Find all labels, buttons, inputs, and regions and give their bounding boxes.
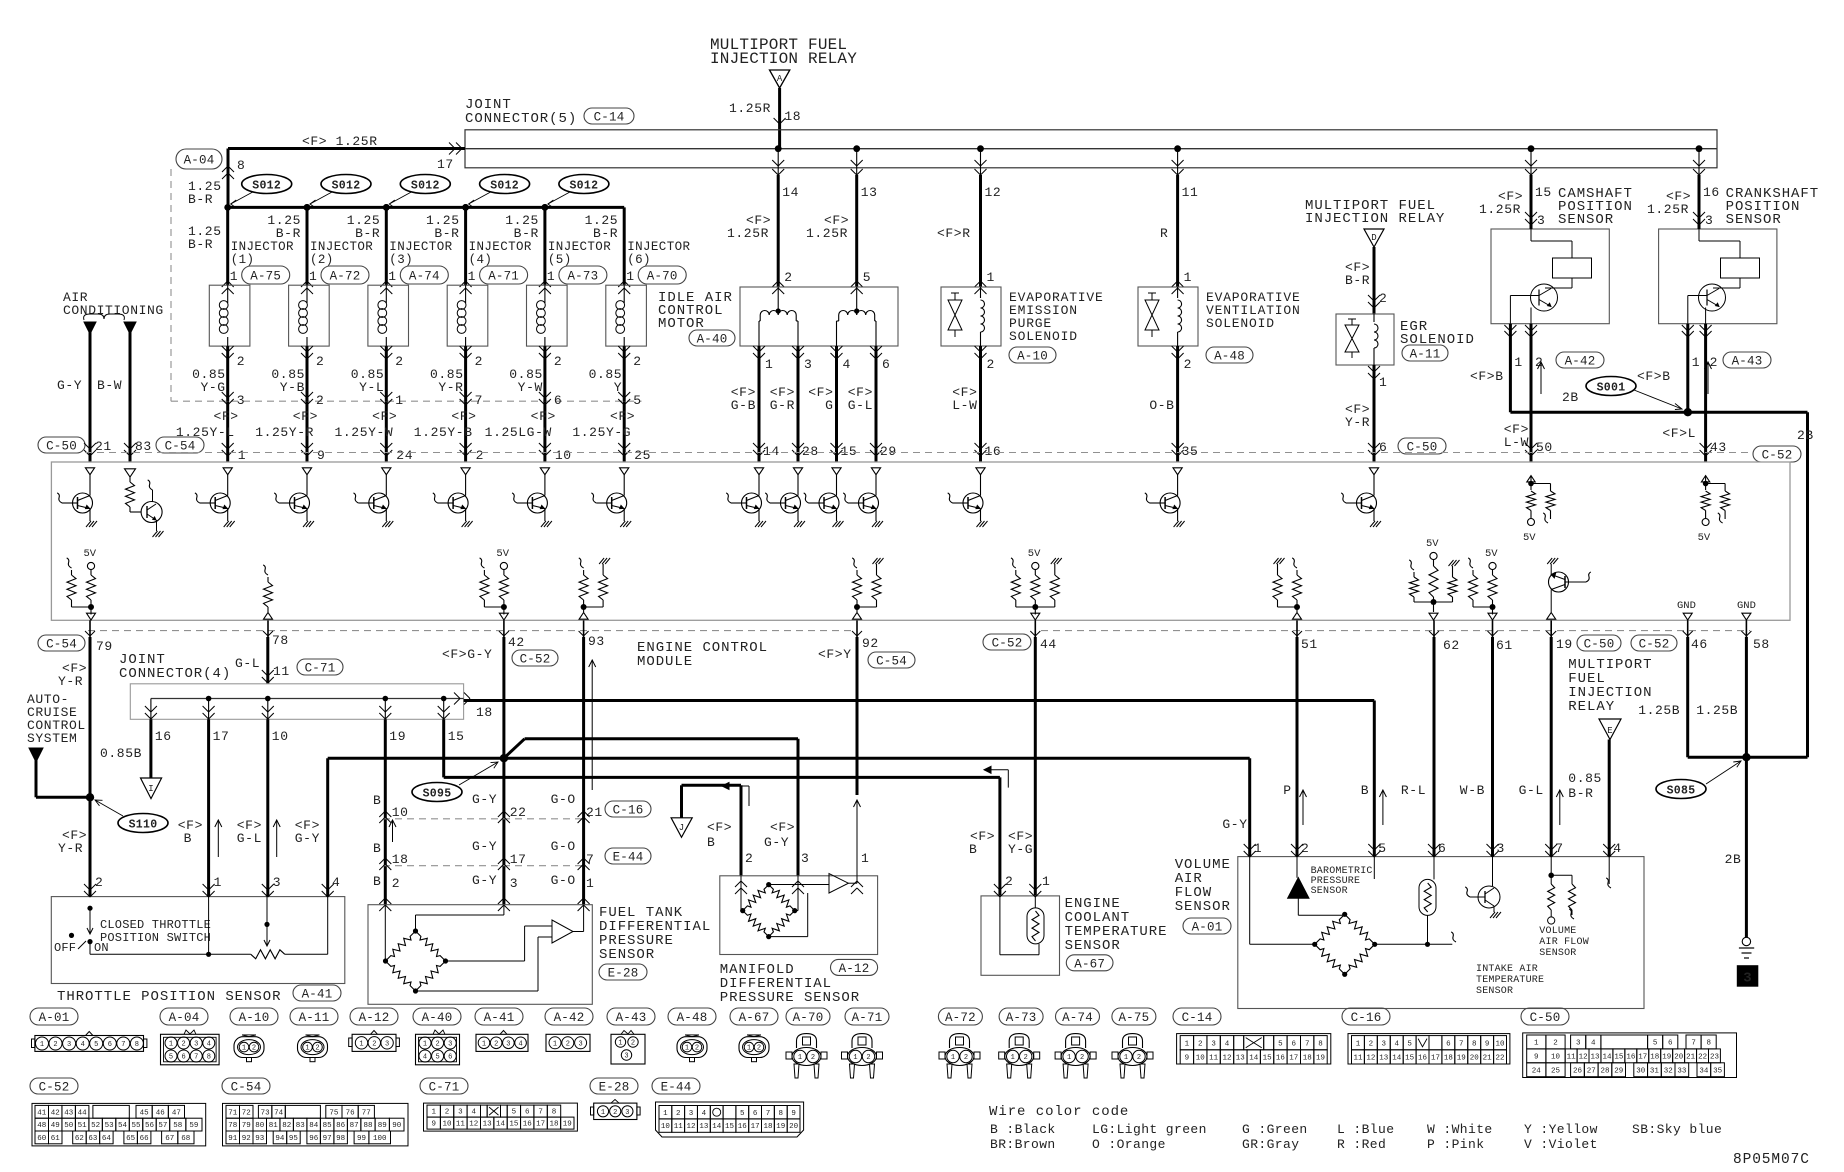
- svg-text:<F>: <F>: [531, 409, 556, 424]
- svg-text:A-12: A-12: [359, 1011, 390, 1025]
- svg-text:1: 1: [359, 1040, 363, 1048]
- svg-text:G-Y: G-Y: [472, 792, 497, 807]
- svg-text:45: 45: [140, 1109, 150, 1117]
- svg-text:V :Violet: V :Violet: [1524, 1137, 1598, 1152]
- svg-text:7: 7: [586, 852, 594, 867]
- svg-text:35: 35: [1713, 1067, 1723, 1075]
- svg-text:2: 2: [631, 1040, 635, 1048]
- svg-text:<F>: <F>: [372, 409, 397, 424]
- svg-text:G-Y: G-Y: [57, 378, 82, 393]
- svg-text:17: 17: [1638, 1054, 1647, 1062]
- svg-text:26: 26: [1573, 1067, 1583, 1075]
- svg-text:2: 2: [392, 876, 400, 891]
- svg-text:B-R: B-R: [188, 237, 213, 252]
- svg-text:SENSOR: SENSOR: [1476, 986, 1513, 997]
- svg-text:20: 20: [1470, 1055, 1480, 1063]
- svg-text:25: 25: [1551, 1067, 1561, 1075]
- svg-text:12: 12: [686, 1123, 695, 1131]
- svg-text:O-B: O-B: [1149, 398, 1174, 413]
- svg-text:5: 5: [740, 1110, 745, 1118]
- svg-text:3: 3: [578, 1040, 582, 1048]
- svg-text:1: 1: [798, 1054, 802, 1062]
- svg-text:1: 1: [853, 1054, 857, 1062]
- svg-text:83: 83: [135, 439, 152, 454]
- svg-text:61: 61: [1496, 638, 1513, 653]
- svg-text:13: 13: [1590, 1054, 1600, 1062]
- svg-text:9: 9: [431, 1121, 436, 1129]
- svg-text:58: 58: [173, 1122, 182, 1130]
- svg-text:C-52: C-52: [992, 637, 1023, 651]
- svg-text:2: 2: [435, 1041, 439, 1049]
- svg-text:87: 87: [350, 1122, 359, 1130]
- svg-text:84: 84: [309, 1122, 319, 1130]
- svg-text:5V: 5V: [1426, 538, 1439, 550]
- svg-text:98: 98: [336, 1135, 345, 1143]
- svg-text:BR:Brown: BR:Brown: [990, 1137, 1056, 1152]
- svg-text:A-43: A-43: [1732, 355, 1763, 369]
- svg-text:19: 19: [1457, 1055, 1466, 1063]
- svg-text:S095: S095: [423, 787, 452, 800]
- svg-text:4: 4: [1591, 1040, 1596, 1048]
- svg-text:L :Blue: L :Blue: [1337, 1122, 1394, 1137]
- svg-text:4: 4: [332, 875, 340, 890]
- svg-text:ON: ON: [94, 941, 109, 955]
- svg-text:5: 5: [512, 1109, 517, 1117]
- svg-text:61: 61: [51, 1135, 61, 1143]
- svg-text:14: 14: [1602, 1054, 1612, 1062]
- svg-text:B-R: B-R: [276, 226, 301, 241]
- svg-text:1.25R: 1.25R: [1479, 202, 1521, 217]
- svg-text:1: 1: [238, 448, 246, 463]
- svg-text:2: 2: [987, 357, 995, 372]
- svg-text:G-Y: G-Y: [295, 831, 320, 846]
- svg-text:19: 19: [563, 1121, 572, 1129]
- svg-text:A-11: A-11: [299, 1011, 330, 1025]
- svg-text:A-41: A-41: [484, 1011, 515, 1025]
- svg-text:2: 2: [1080, 1054, 1084, 1062]
- svg-text:11: 11: [456, 1121, 466, 1129]
- svg-text:A-73: A-73: [1006, 1011, 1037, 1025]
- svg-text:11: 11: [1567, 1054, 1577, 1062]
- svg-text:74: 74: [274, 1109, 284, 1117]
- svg-text:A-48: A-48: [1214, 350, 1245, 364]
- svg-text:B: B: [373, 793, 381, 808]
- svg-text:18: 18: [1303, 1055, 1312, 1063]
- svg-text:28: 28: [802, 444, 819, 459]
- svg-text:7: 7: [1691, 1040, 1696, 1048]
- svg-text:S012: S012: [332, 179, 361, 192]
- svg-text:60: 60: [37, 1135, 47, 1143]
- svg-text:91: 91: [228, 1135, 238, 1143]
- svg-text:2B: 2B: [1797, 428, 1814, 443]
- svg-text:1: 1: [169, 1041, 173, 1049]
- svg-text:16: 16: [738, 1123, 748, 1131]
- svg-text:88: 88: [363, 1122, 372, 1130]
- svg-text:R-L: R-L: [1401, 783, 1426, 798]
- svg-text:78: 78: [272, 633, 289, 648]
- svg-text:G :Green: G :Green: [1242, 1122, 1308, 1137]
- svg-text:2: 2: [1369, 1040, 1374, 1048]
- svg-text:B :Black: B :Black: [990, 1122, 1056, 1137]
- svg-text:2: 2: [475, 354, 483, 369]
- svg-text:G-R: G-R: [770, 398, 795, 413]
- svg-text:1: 1: [1185, 1040, 1190, 1048]
- svg-text:55: 55: [131, 1122, 141, 1130]
- svg-text:E-44: E-44: [661, 1081, 692, 1095]
- svg-text:6: 6: [1438, 841, 1446, 856]
- svg-text:POSITION SWITCH: POSITION SWITCH: [100, 931, 211, 945]
- svg-text:1: 1: [618, 1040, 622, 1048]
- svg-text:(6): (6): [627, 253, 651, 267]
- svg-text:34: 34: [1699, 1067, 1709, 1075]
- svg-text:G-B: G-B: [731, 398, 756, 413]
- svg-text:1.25Y-G: 1.25Y-G: [572, 425, 631, 440]
- svg-text:29: 29: [880, 444, 897, 459]
- svg-text:3: 3: [458, 1109, 463, 1117]
- svg-text:A-01: A-01: [1192, 921, 1223, 935]
- svg-text:MODULE: MODULE: [637, 654, 693, 670]
- svg-text:64: 64: [102, 1135, 112, 1143]
- svg-text:C-54: C-54: [46, 638, 77, 652]
- svg-text:4: 4: [472, 1109, 477, 1117]
- svg-text:P: P: [1283, 783, 1291, 798]
- svg-text:15: 15: [841, 444, 858, 459]
- svg-text:14: 14: [1249, 1055, 1259, 1063]
- svg-text:30: 30: [1636, 1067, 1646, 1075]
- svg-text:B: B: [184, 831, 192, 846]
- svg-text:S012: S012: [252, 179, 281, 192]
- svg-text:(3): (3): [389, 253, 413, 267]
- svg-text:2: 2: [1553, 1040, 1558, 1048]
- svg-text:24: 24: [1532, 1067, 1542, 1075]
- svg-text:17: 17: [437, 157, 454, 172]
- svg-text:6: 6: [1668, 1040, 1673, 1048]
- svg-text:2: 2: [695, 1045, 699, 1053]
- svg-text:2: 2: [372, 1040, 376, 1048]
- svg-text:A-12: A-12: [839, 962, 870, 976]
- svg-text:O :Orange: O :Orange: [1092, 1137, 1166, 1152]
- svg-text:10: 10: [1551, 1054, 1561, 1062]
- svg-text:12: 12: [469, 1121, 478, 1129]
- svg-text:C-14: C-14: [1182, 1011, 1213, 1025]
- svg-text:4: 4: [1394, 1040, 1399, 1048]
- svg-text:A-40: A-40: [422, 1011, 453, 1025]
- svg-text:G-Y: G-Y: [472, 873, 497, 888]
- svg-text:P :Pink: P :Pink: [1427, 1137, 1484, 1152]
- svg-text:18: 18: [392, 852, 409, 867]
- svg-text:5: 5: [1653, 1040, 1658, 1048]
- svg-text:1.25R: 1.25R: [729, 101, 771, 116]
- svg-text:5: 5: [94, 1041, 98, 1049]
- svg-text:53: 53: [105, 1122, 115, 1130]
- svg-text:1: 1: [230, 269, 238, 284]
- svg-text:AIR FLOW: AIR FLOW: [1539, 937, 1589, 948]
- svg-text:3: 3: [1537, 213, 1545, 228]
- svg-text:1.25Y-L: 1.25Y-L: [176, 425, 235, 440]
- svg-text:<F>: <F>: [451, 409, 476, 424]
- svg-text:C-54: C-54: [165, 440, 196, 454]
- svg-text:1.25R: 1.25R: [806, 226, 848, 241]
- svg-text:41: 41: [37, 1109, 47, 1117]
- svg-text:19: 19: [1316, 1055, 1325, 1063]
- svg-text:10: 10: [661, 1123, 671, 1131]
- svg-text:R: R: [1160, 226, 1168, 241]
- svg-text:8: 8: [1706, 1040, 1711, 1048]
- svg-text:G-L: G-L: [848, 398, 873, 413]
- svg-text:A: A: [777, 74, 783, 84]
- svg-text:B: B: [1361, 783, 1369, 798]
- svg-text:14: 14: [782, 185, 799, 200]
- svg-text:2: 2: [1005, 874, 1013, 889]
- svg-text:2: 2: [237, 354, 245, 369]
- svg-text:2: 2: [613, 1109, 617, 1117]
- svg-text:S012: S012: [411, 179, 440, 192]
- svg-text:1.25Y-R: 1.25Y-R: [255, 425, 314, 440]
- svg-text:<F>R: <F>R: [937, 226, 971, 241]
- svg-text:INTAKE AIR: INTAKE AIR: [1476, 964, 1538, 975]
- svg-text:12: 12: [1366, 1055, 1375, 1063]
- svg-text:Y-R: Y-R: [58, 674, 83, 689]
- svg-text:C-52: C-52: [1762, 449, 1793, 463]
- svg-text:B-R: B-R: [593, 226, 618, 241]
- svg-text:90: 90: [392, 1122, 402, 1130]
- svg-text:20: 20: [789, 1123, 799, 1131]
- svg-text:2: 2: [1137, 1054, 1141, 1062]
- svg-text:2B: 2B: [1725, 852, 1742, 867]
- svg-text:22: 22: [1495, 1055, 1504, 1063]
- svg-text:G-O: G-O: [551, 873, 576, 888]
- svg-text:VOLUME: VOLUME: [1539, 926, 1576, 937]
- svg-text:A-04: A-04: [169, 1011, 200, 1025]
- svg-text:2: 2: [95, 875, 103, 890]
- svg-text:22: 22: [510, 805, 527, 820]
- svg-text:2: 2: [395, 354, 403, 369]
- svg-text:G: G: [825, 398, 833, 413]
- svg-text:PRESSURE SENSOR: PRESSURE SENSOR: [720, 990, 860, 1006]
- svg-text:2: 2: [316, 354, 324, 369]
- svg-text:2: 2: [53, 1041, 57, 1049]
- svg-text:21: 21: [1686, 1054, 1696, 1062]
- svg-text:18: 18: [763, 1123, 772, 1131]
- svg-text:3: 3: [67, 1041, 71, 1049]
- svg-text:1.25Y-B: 1.25Y-B: [414, 425, 473, 440]
- svg-text:15: 15: [725, 1123, 735, 1131]
- svg-text:6: 6: [1446, 1040, 1451, 1048]
- svg-text:20: 20: [1674, 1054, 1684, 1062]
- svg-text:3: 3: [237, 393, 245, 408]
- svg-text:6: 6: [108, 1041, 112, 1049]
- svg-text:7: 7: [1459, 1040, 1464, 1048]
- svg-text:3: 3: [510, 876, 518, 891]
- svg-text:8: 8: [237, 158, 245, 173]
- svg-text:50: 50: [64, 1122, 74, 1130]
- svg-text:2: 2: [784, 270, 792, 285]
- svg-text:42: 42: [508, 635, 525, 650]
- svg-text:57: 57: [158, 1122, 167, 1130]
- svg-text:82: 82: [282, 1122, 291, 1130]
- svg-text:1: 1: [601, 1109, 605, 1117]
- svg-text:1: 1: [1356, 1040, 1361, 1048]
- svg-text:3: 3: [1211, 1040, 1216, 1048]
- svg-text:A-67: A-67: [739, 1011, 770, 1025]
- svg-text:17: 17: [510, 852, 527, 867]
- svg-text:4: 4: [423, 1054, 427, 1062]
- svg-text:INJECTOR: INJECTOR: [469, 240, 532, 254]
- svg-text:10: 10: [1196, 1055, 1206, 1063]
- svg-text:1: 1: [395, 393, 403, 408]
- svg-text:18: 18: [476, 705, 493, 720]
- svg-text:62: 62: [1443, 638, 1460, 653]
- svg-text:2: 2: [964, 1054, 968, 1062]
- svg-text:GND: GND: [1737, 600, 1756, 612]
- svg-text:A-48: A-48: [677, 1011, 708, 1025]
- svg-text:<F>: <F>: [293, 409, 318, 424]
- svg-text:SENSOR: SENSOR: [1311, 886, 1348, 897]
- svg-text:L-W: L-W: [952, 398, 977, 413]
- svg-text:8: 8: [1472, 1040, 1477, 1048]
- svg-text:4: 4: [702, 1110, 707, 1118]
- svg-text:1: 1: [431, 1109, 436, 1117]
- svg-text:2: 2: [494, 1040, 498, 1048]
- svg-text:5: 5: [169, 1054, 173, 1062]
- svg-text:15: 15: [1535, 185, 1552, 200]
- svg-text:3: 3: [385, 1040, 389, 1048]
- svg-text:0.85B: 0.85B: [100, 746, 142, 761]
- svg-text:1: 1: [242, 1045, 246, 1053]
- svg-text:6: 6: [554, 393, 562, 408]
- svg-text:CONNECTOR(5): CONNECTOR(5): [465, 111, 577, 127]
- svg-text:85: 85: [323, 1122, 333, 1130]
- svg-text:66: 66: [140, 1135, 150, 1143]
- svg-text:(5): (5): [548, 253, 572, 267]
- svg-text:A-04: A-04: [184, 154, 215, 168]
- svg-text:67: 67: [165, 1135, 174, 1143]
- svg-text:B: B: [373, 874, 381, 889]
- svg-text:1: 1: [1042, 874, 1050, 889]
- svg-text:D: D: [1371, 233, 1376, 243]
- svg-text:4: 4: [81, 1041, 85, 1049]
- svg-text:2: 2: [1198, 1040, 1203, 1048]
- svg-text:SOLENOID: SOLENOID: [1009, 329, 1078, 344]
- svg-text:1.25R: 1.25R: [727, 226, 769, 241]
- svg-text:6: 6: [1292, 1040, 1297, 1048]
- svg-text:95: 95: [289, 1135, 299, 1143]
- svg-text:11: 11: [1353, 1055, 1363, 1063]
- svg-text:5V: 5V: [1523, 532, 1536, 544]
- svg-text:10: 10: [555, 448, 572, 463]
- svg-text:Y-R: Y-R: [1345, 415, 1370, 430]
- svg-text:A-01: A-01: [39, 1011, 70, 1025]
- svg-text:INJECTION RELAY: INJECTION RELAY: [1305, 211, 1445, 227]
- svg-text:2: 2: [1301, 841, 1309, 856]
- svg-text:16: 16: [985, 444, 1002, 459]
- svg-text:E-44: E-44: [613, 851, 644, 865]
- svg-text:5V: 5V: [1485, 548, 1498, 560]
- svg-text:G-Y: G-Y: [764, 835, 789, 850]
- svg-text:19: 19: [1662, 1054, 1671, 1062]
- svg-text:G-O: G-O: [551, 839, 576, 854]
- svg-text:7: 7: [538, 1109, 543, 1117]
- svg-text:15: 15: [1614, 1054, 1624, 1062]
- svg-text:10: 10: [442, 1121, 452, 1129]
- svg-text:24: 24: [396, 448, 413, 463]
- svg-text:CLOSED THROTTLE: CLOSED THROTTLE: [100, 918, 211, 932]
- svg-text:92: 92: [242, 1135, 251, 1143]
- svg-text:C-54: C-54: [231, 1081, 262, 1095]
- svg-text:5: 5: [1378, 841, 1386, 856]
- svg-text:E-28: E-28: [599, 1081, 630, 1095]
- svg-text:4: 4: [1225, 1040, 1230, 1048]
- svg-text:B-R: B-R: [514, 226, 539, 241]
- svg-text:A-42: A-42: [1565, 355, 1596, 369]
- svg-text:1.25R: 1.25R: [1647, 202, 1689, 217]
- svg-text:C-54: C-54: [876, 655, 907, 669]
- svg-text:CONNECTOR(4): CONNECTOR(4): [119, 666, 231, 682]
- svg-text:43: 43: [64, 1109, 74, 1117]
- svg-text:100: 100: [373, 1135, 387, 1143]
- svg-text:SYSTEM: SYSTEM: [27, 731, 77, 746]
- svg-text:SB:Sky blue: SB:Sky blue: [1632, 1122, 1722, 1137]
- svg-text:<F>: <F>: [610, 409, 635, 424]
- svg-text:1: 1: [309, 269, 317, 284]
- svg-text:SENSOR: SENSOR: [1065, 938, 1121, 954]
- svg-text:R :Red: R :Red: [1337, 1137, 1386, 1152]
- svg-text:65: 65: [126, 1135, 136, 1143]
- svg-text:A-72: A-72: [330, 270, 361, 284]
- svg-text:INJECTOR: INJECTOR: [389, 240, 452, 254]
- svg-text:2: 2: [1379, 291, 1387, 306]
- svg-text:2: 2: [676, 1110, 681, 1118]
- svg-text:C-71: C-71: [305, 662, 336, 676]
- svg-text:SOLENOID: SOLENOID: [1206, 316, 1275, 331]
- svg-text:2: 2: [445, 1109, 450, 1117]
- svg-text:SENSOR: SENSOR: [1726, 212, 1782, 228]
- svg-text:17: 17: [751, 1123, 760, 1131]
- svg-text:75: 75: [329, 1109, 339, 1117]
- svg-text:A-42: A-42: [554, 1011, 585, 1025]
- svg-text:3: 3: [194, 1041, 198, 1049]
- svg-text:GR:Gray: GR:Gray: [1242, 1137, 1299, 1152]
- svg-text:33: 33: [1677, 1067, 1687, 1075]
- svg-text:93: 93: [588, 634, 605, 649]
- svg-text:47: 47: [172, 1109, 181, 1117]
- svg-text:29: 29: [1614, 1067, 1623, 1075]
- svg-text:28: 28: [1600, 1067, 1609, 1075]
- svg-text:B: B: [373, 841, 381, 856]
- svg-text:16: 16: [1703, 185, 1720, 200]
- svg-text:10: 10: [392, 805, 409, 820]
- svg-text:2: 2: [1535, 355, 1543, 370]
- svg-text:2B: 2B: [1562, 390, 1579, 405]
- svg-text:18: 18: [549, 1121, 558, 1129]
- svg-text:97: 97: [323, 1135, 332, 1143]
- svg-text:A-71: A-71: [852, 1011, 883, 1025]
- svg-text:2: 2: [633, 354, 641, 369]
- svg-text:7: 7: [475, 393, 483, 408]
- svg-text:A-70: A-70: [647, 270, 678, 284]
- svg-text:3: 3: [624, 1053, 628, 1061]
- svg-text:46: 46: [156, 1109, 166, 1117]
- svg-text:A-10: A-10: [1017, 350, 1048, 364]
- svg-text:81: 81: [269, 1122, 279, 1130]
- svg-text:32: 32: [1664, 1067, 1673, 1075]
- svg-text:3: 3: [689, 1110, 694, 1118]
- svg-text:92: 92: [862, 636, 879, 651]
- svg-text:1: 1: [663, 1110, 668, 1118]
- svg-text:13: 13: [861, 185, 878, 200]
- svg-text:13: 13: [483, 1121, 493, 1129]
- svg-text:7: 7: [121, 1041, 125, 1049]
